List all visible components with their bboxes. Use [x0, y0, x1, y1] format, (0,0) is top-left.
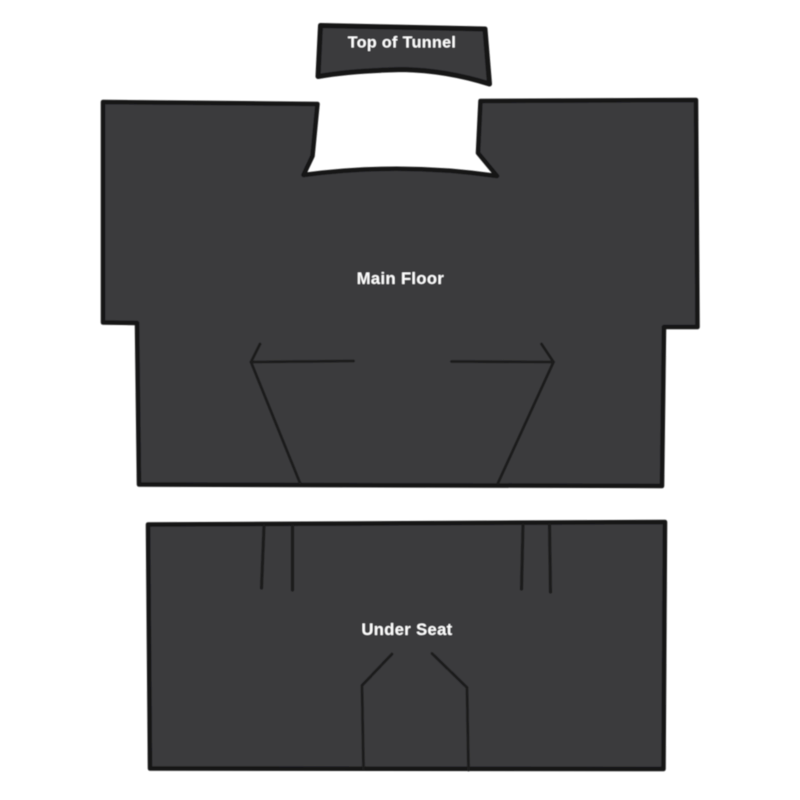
- under-seat-label: Under Seat: [361, 621, 452, 639]
- diagram-canvas: Top of Tunnel Main Floor: [0, 0, 800, 800]
- under-seat-right-slit-2: [550, 525, 551, 592]
- tunnel-top-piece: Top of Tunnel: [318, 26, 490, 85]
- main-floor-shape: [103, 100, 698, 486]
- tunnel-top-label: Top of Tunnel: [348, 35, 457, 52]
- main-floor-piece: Main Floor: [103, 100, 698, 486]
- carpet-template-diagram: Top of Tunnel Main Floor: [0, 0, 800, 800]
- under-seat-right-slit-1: [522, 525, 524, 589]
- under-seat-shape: [148, 522, 665, 769]
- main-floor-label: Main Floor: [357, 270, 445, 288]
- under-seat-piece: Under Seat: [148, 522, 665, 770]
- diagram-pieces: Top of Tunnel Main Floor: [103, 26, 698, 771]
